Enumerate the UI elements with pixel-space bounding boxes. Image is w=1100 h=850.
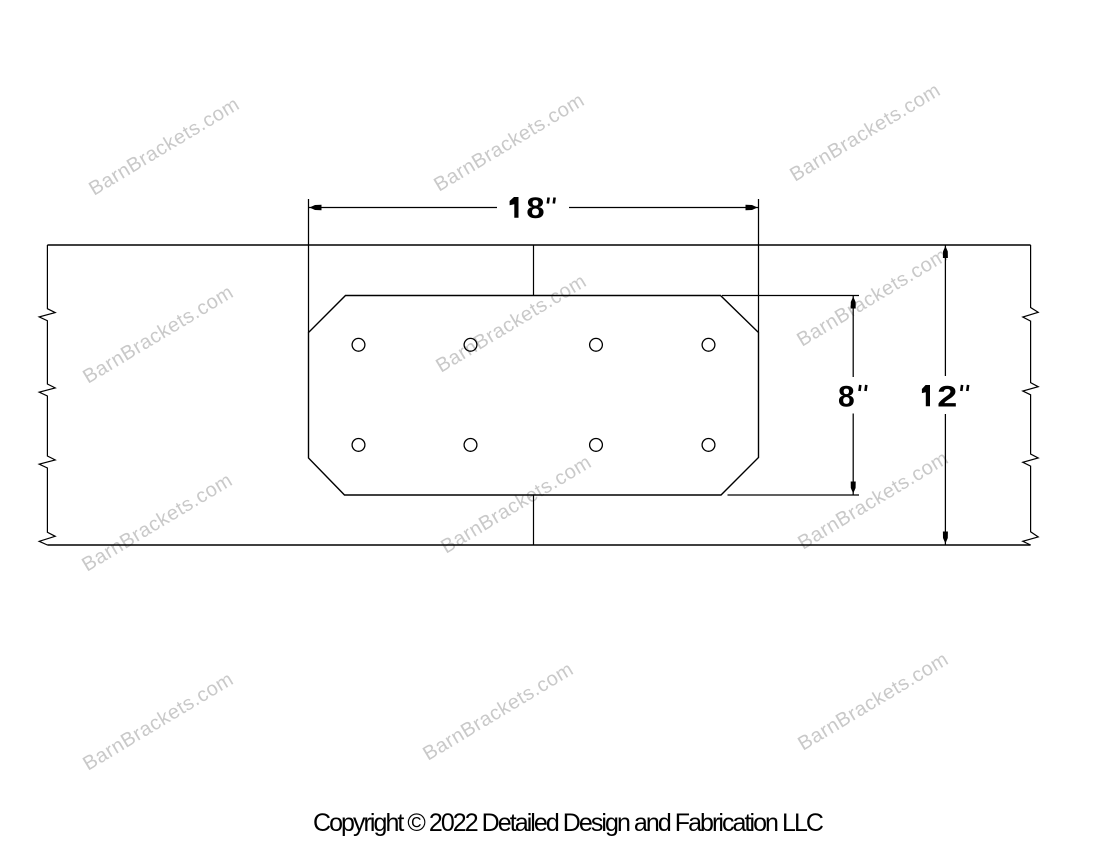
svg-text:8: 8 — [838, 381, 858, 414]
svg-text:8: 8 — [526, 191, 547, 224]
svg-text:2: 2 — [937, 380, 961, 413]
svg-text:Copyright © 2022 Detailed Desi: Copyright © 2022 Detailed Design and Fab… — [313, 809, 824, 837]
